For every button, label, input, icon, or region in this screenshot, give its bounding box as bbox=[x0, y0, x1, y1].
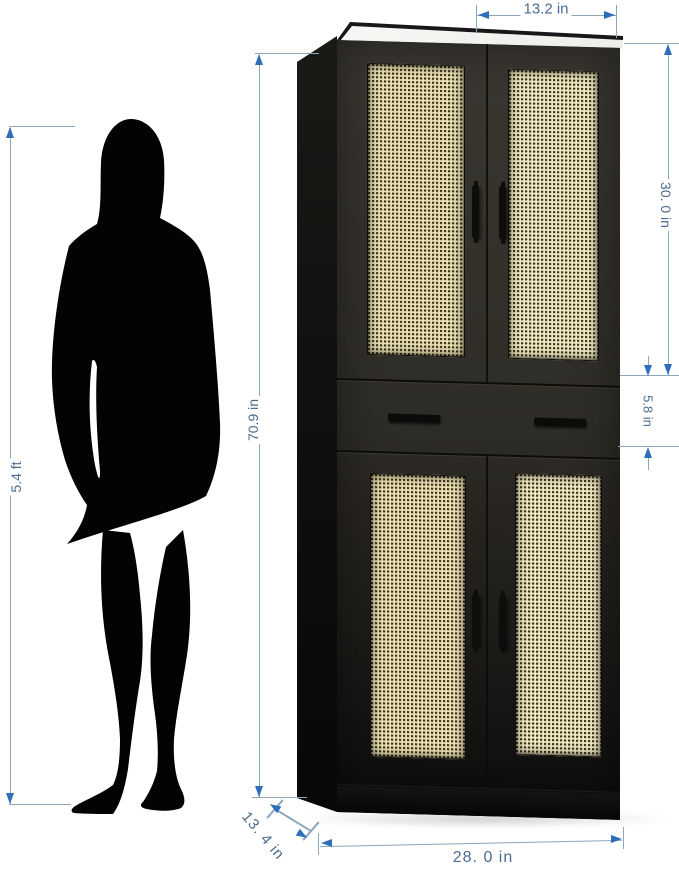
dim-arrow-down-right-icon bbox=[296, 829, 310, 842]
dim-arrow-up-icon bbox=[644, 447, 652, 458]
dim-arrow-right-icon bbox=[604, 11, 615, 19]
dim-tick bbox=[616, 5, 617, 38]
dim-label: 70.9 in bbox=[245, 396, 261, 444]
person-silhouette bbox=[35, 115, 235, 815]
dim-label: 5.8 in bbox=[640, 392, 655, 430]
door-handle-lower-right bbox=[499, 595, 506, 649]
cabinet-front bbox=[337, 40, 620, 820]
rattan-panel-upper-left bbox=[367, 63, 465, 358]
door-handle-upper-left bbox=[472, 185, 479, 239]
drawer-handle-right bbox=[534, 418, 586, 427]
dim-label: 30. 0 in bbox=[658, 179, 674, 231]
drawer-handle-left bbox=[388, 413, 440, 422]
dim-tick bbox=[255, 53, 319, 54]
dim-label: 28. 0 in bbox=[450, 849, 516, 867]
dim-arrow-up-icon bbox=[664, 44, 672, 55]
dim-label: 13.2 in bbox=[520, 0, 571, 17]
dim-arrow-down-icon bbox=[6, 793, 14, 804]
dim-arrow-up-icon bbox=[255, 54, 263, 65]
person-body bbox=[52, 119, 220, 544]
person-right-leg bbox=[141, 530, 190, 811]
dim-line bbox=[320, 840, 622, 847]
door-handle-upper-right bbox=[499, 186, 506, 240]
dim-arrow-down-icon bbox=[664, 364, 672, 375]
dim-arrow-left-icon bbox=[321, 839, 332, 847]
dim-tick bbox=[9, 804, 71, 805]
door-handle-lower-left bbox=[472, 594, 479, 648]
dim-tick bbox=[318, 833, 319, 855]
dim-arrow-left-icon bbox=[478, 11, 489, 19]
dim-arrow-right-icon bbox=[611, 835, 622, 843]
lower-door-center-seam bbox=[486, 456, 488, 774]
dim-tick bbox=[252, 797, 307, 798]
dim-arrow-down-icon bbox=[255, 786, 263, 797]
cabinet-side-panel bbox=[295, 30, 340, 830]
dim-arrow-up-icon bbox=[6, 127, 14, 138]
dim-line bbox=[648, 458, 649, 470]
dim-tick bbox=[623, 827, 624, 849]
dim-arrow-down-icon bbox=[644, 365, 652, 376]
dim-tick bbox=[476, 5, 477, 33]
rattan-panel-upper-right bbox=[508, 69, 599, 362]
person-left-leg bbox=[72, 530, 143, 814]
upper-door-center-seam bbox=[486, 44, 488, 384]
dim-tick bbox=[9, 126, 75, 127]
rattan-panel-lower-right bbox=[515, 473, 602, 757]
rattan-panel-lower-left bbox=[370, 473, 466, 760]
dim-label: 5.4 ft bbox=[8, 458, 24, 495]
dim-label: 13. 4 in bbox=[236, 806, 290, 866]
diagram-canvas: 5.4 ft 70.9 in 13.2 in 30. 0 in 5.8 in bbox=[0, 0, 679, 869]
